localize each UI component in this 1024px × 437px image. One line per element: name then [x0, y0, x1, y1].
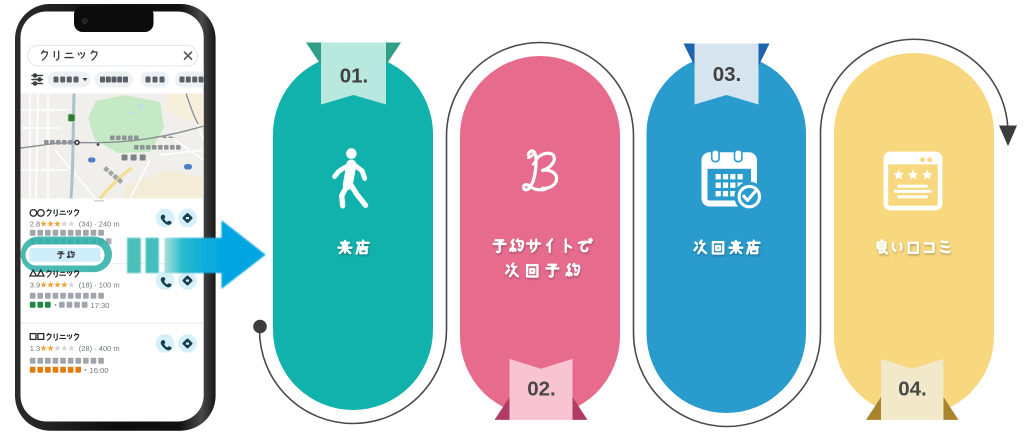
svg-text:1.3: 1.3: [30, 344, 40, 353]
svg-text:2.8: 2.8: [30, 220, 40, 229]
svg-text:(18) · 100 m: (18) · 100 m: [79, 281, 120, 290]
svg-text:02.: 02.: [527, 378, 556, 401]
svg-text:01.: 01.: [340, 65, 369, 88]
svg-text:16:00: 16:00: [90, 366, 109, 375]
svg-text:(34) · 240 m: (34) · 240 m: [79, 220, 120, 229]
svg-text:04.: 04.: [898, 378, 927, 401]
svg-text:17:30: 17:30: [91, 301, 110, 310]
svg-text:(28) · 400 m: (28) · 400 m: [79, 344, 120, 353]
svg-text:03.: 03.: [713, 63, 742, 86]
svg-text:3.9: 3.9: [30, 281, 40, 290]
